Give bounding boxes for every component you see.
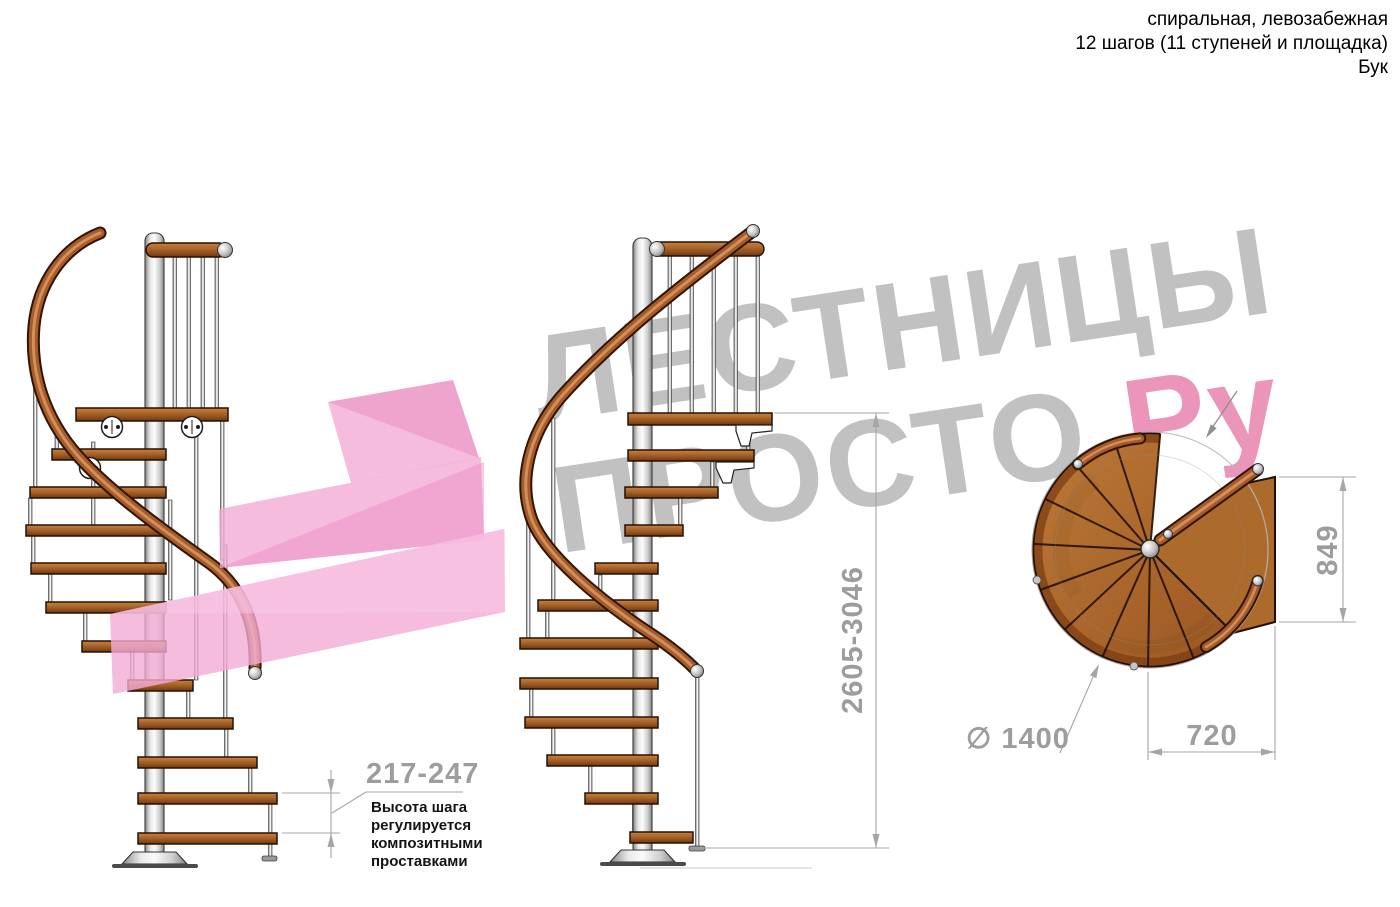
center-view-pole — [600, 238, 686, 866]
plan-direction-arrow — [1206, 391, 1237, 438]
front-views — [0, 0, 1400, 907]
note-line-4: проставками — [371, 853, 468, 871]
title-line-steps: 12 шагов (11 ступеней и площадка) — [1075, 32, 1388, 56]
title-line-material: Бук — [1075, 56, 1388, 80]
plan-view — [1032, 391, 1275, 670]
title-block: спиральная, левозабежная 12 шагов (11 ст… — [1075, 8, 1388, 80]
dim-label-landing-depth: 849 — [1312, 470, 1344, 630]
center-side-view — [520, 225, 812, 869]
dim-label-landing-width: 720 — [1162, 720, 1262, 753]
note-line-1: Высота шага — [371, 799, 467, 817]
note-line-3: композитными — [371, 835, 483, 853]
drawing-canvas: ЛЕСТНИЦЫ ПРОСТО.Ру — [0, 0, 1400, 907]
title-line-type: спиральная, левозабежная — [1075, 8, 1388, 32]
plan-center-pole — [1141, 540, 1159, 558]
dim-label-step-height: 217-247 — [366, 758, 479, 791]
note-line-2: регулируется — [371, 817, 471, 835]
dim-label-total-height: 2605-3046 — [837, 560, 869, 720]
dim-label-diameter: ∅ 1400 — [966, 721, 1070, 756]
